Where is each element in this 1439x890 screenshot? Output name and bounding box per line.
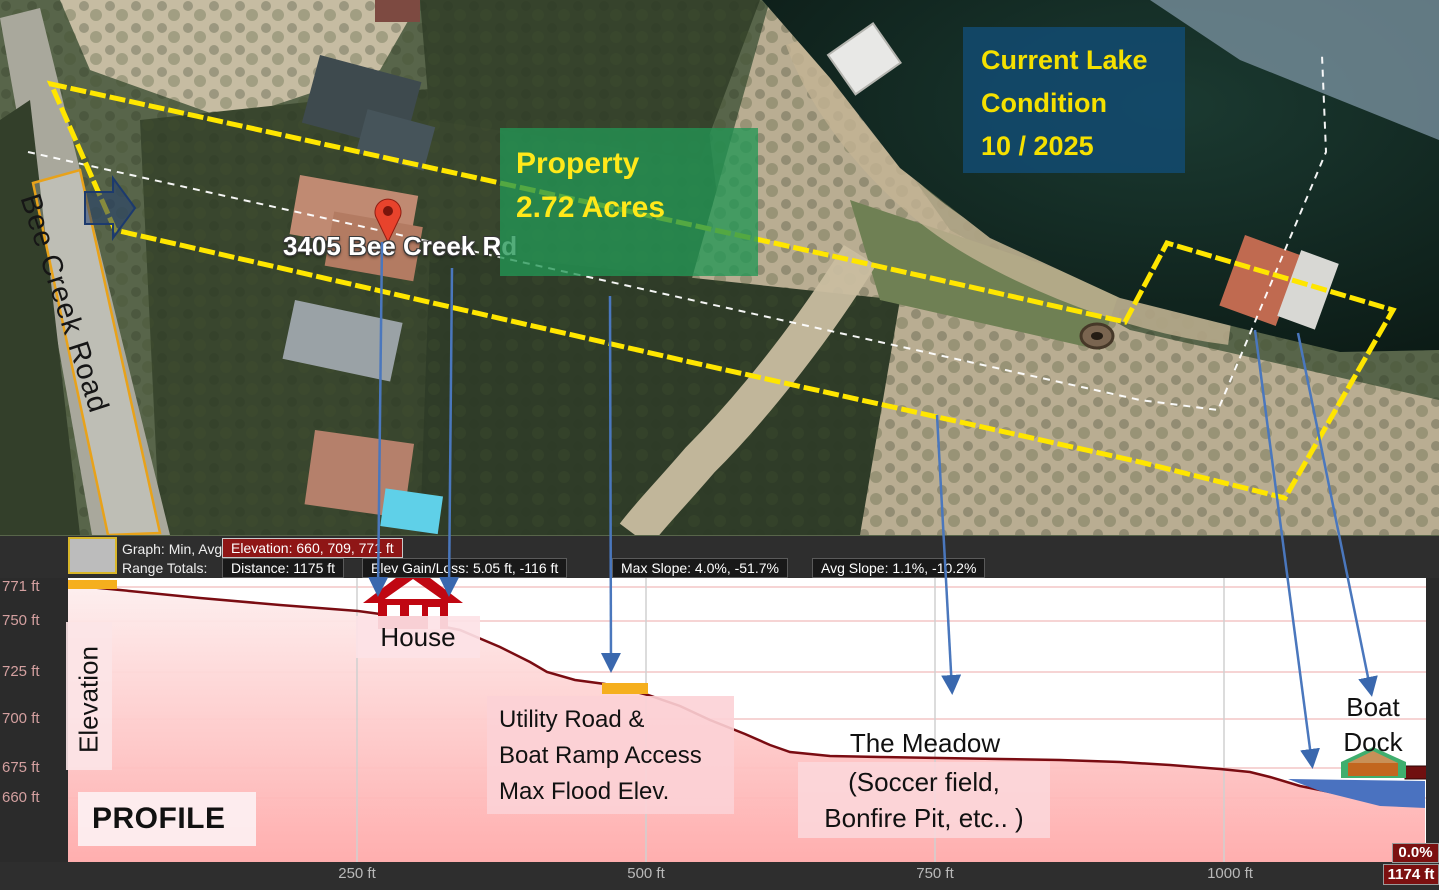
floating-dock bbox=[828, 23, 901, 94]
address-label[interactable]: 3405 Bee Creek Rd bbox=[283, 231, 513, 262]
profile-title: PROFILE bbox=[78, 792, 256, 846]
meadow-line3: Bonfire Pit, etc.. ) bbox=[798, 800, 1050, 836]
boat-dock-line1: Boat bbox=[1328, 690, 1418, 725]
lake-callout-line3: 10 / 2025 bbox=[981, 125, 1185, 168]
bonfire-pit-center bbox=[1091, 332, 1103, 340]
property-callout-line1: Property bbox=[516, 142, 758, 186]
arrow-utility-road bbox=[610, 296, 611, 668]
lake-callout-line2: Condition bbox=[981, 82, 1185, 125]
meadow-line2: (Soccer field, bbox=[798, 764, 1050, 800]
boat-dock-annotation: Boat Dock bbox=[1328, 690, 1418, 760]
clearing-top-left bbox=[60, 0, 420, 120]
direction-arrow-icon bbox=[85, 178, 135, 238]
utility-line2: Boat Ramp Access bbox=[499, 738, 734, 774]
utility-line3: Max Flood Elev. bbox=[499, 774, 734, 810]
x-tick-500: 500 ft bbox=[611, 865, 681, 882]
lake-light-corner bbox=[1150, 0, 1439, 140]
max-slope-stat: Max Slope: 4.0%, -51.7% bbox=[612, 558, 788, 578]
arrow-boat-dock bbox=[1298, 333, 1371, 692]
property-callout-line2: 2.72 Acres bbox=[516, 186, 758, 230]
graph-legend-swatch[interactable] bbox=[68, 537, 117, 574]
scrub-patch bbox=[420, 250, 900, 535]
start-marker bbox=[68, 580, 117, 589]
building-roof bbox=[283, 300, 403, 382]
elevation-axis-label: Elevation bbox=[74, 635, 105, 765]
dirt-road bbox=[635, 255, 860, 535]
y-tick-675: 675 ft bbox=[2, 759, 58, 776]
building-roof bbox=[375, 0, 420, 22]
y-tick-771: 771 ft bbox=[2, 578, 58, 595]
boat-dock-roof bbox=[1219, 230, 1338, 339]
lake-condition-callout: Current Lake Condition 10 / 2025 bbox=[963, 27, 1185, 173]
elevation-stat: Elevation: 660, 709, 771 ft bbox=[222, 538, 403, 558]
horizontal-gridlines bbox=[68, 587, 1426, 798]
meadow-annotation-box: (Soccer field, Bonfire Pit, etc.. ) bbox=[798, 762, 1050, 838]
road-name-label: Bee Creek Road bbox=[13, 190, 115, 417]
property-acreage-callout: Property 2.72 Acres bbox=[500, 128, 758, 276]
y-tick-700: 700 ft bbox=[2, 710, 58, 727]
house-annotation: House bbox=[356, 616, 480, 658]
lake-callout-line1: Current Lake bbox=[981, 39, 1185, 82]
subject-house-roof bbox=[285, 175, 428, 281]
building-roof bbox=[303, 430, 450, 534]
max-flood-marker bbox=[602, 683, 648, 694]
elevation-profile-line bbox=[68, 585, 1425, 803]
google-earth-property-overview: Bee Creek Road 3405 Bee Creek Rd Propert… bbox=[0, 0, 1439, 890]
bee-creek-road-surface bbox=[0, 8, 170, 535]
path-end-marker bbox=[1405, 766, 1427, 779]
slope-badge: 0.0% bbox=[1392, 843, 1439, 863]
plot-background bbox=[68, 578, 1426, 862]
end-distance-badge: 1174 ft bbox=[1383, 864, 1439, 885]
y-tick-750: 750 ft bbox=[2, 612, 58, 629]
building-roof bbox=[298, 55, 446, 171]
x-tick-250: 250 ft bbox=[322, 865, 392, 882]
utility-line1: Utility Road & bbox=[499, 702, 734, 738]
x-tick-750: 750 ft bbox=[900, 865, 970, 882]
elevation-axis-label-box: Elevation bbox=[66, 622, 112, 770]
range-totals-label: Range Totals: bbox=[122, 560, 207, 576]
distance-stat: Distance: 1175 ft bbox=[222, 558, 344, 578]
utility-road-annotation: Utility Road & Boat Ramp Access Max Floo… bbox=[487, 696, 734, 814]
meadow-field bbox=[850, 200, 1120, 350]
avg-slope-stat: Avg Slope: 1.1%, -10.2% bbox=[812, 558, 985, 578]
gain-loss-stat: Elev Gain/Loss: 5.05 ft, -116 ft bbox=[362, 558, 567, 578]
bonfire-pit bbox=[1081, 324, 1113, 348]
meadow-annotation-title: The Meadow bbox=[815, 728, 1035, 759]
boat-dock-line2: Dock bbox=[1328, 725, 1418, 760]
x-tick-1000: 1000 ft bbox=[1195, 865, 1265, 882]
right-axis-strip bbox=[1426, 578, 1439, 862]
y-tick-725: 725 ft bbox=[2, 663, 58, 680]
elevation-area-fill bbox=[68, 585, 1425, 862]
lake-water-level bbox=[1288, 779, 1425, 808]
y-tick-660: 660 ft bbox=[2, 789, 58, 806]
